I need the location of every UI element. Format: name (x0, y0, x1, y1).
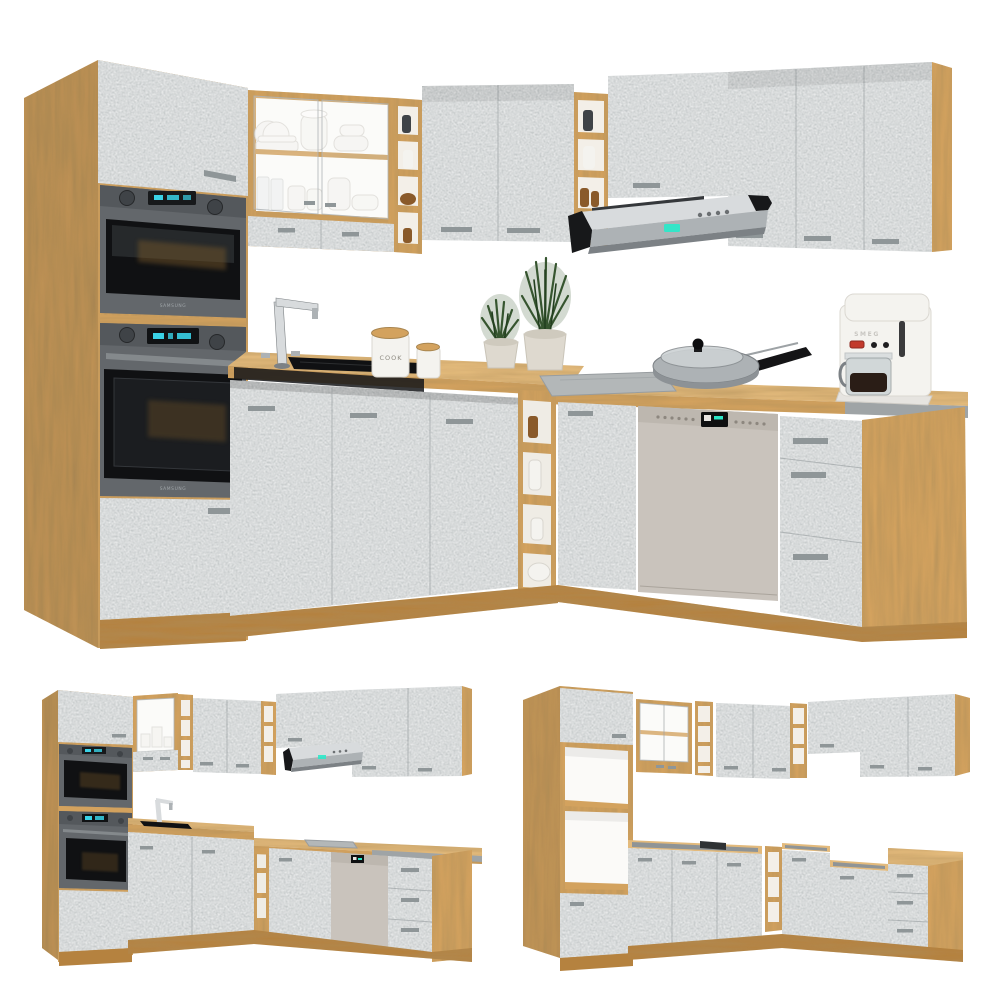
door-handle (325, 203, 336, 207)
a-tall-oven-column (42, 690, 133, 966)
bowl (400, 193, 416, 205)
faucet-lever (291, 351, 300, 356)
door-handle (304, 201, 315, 205)
pepper-mill (402, 115, 411, 133)
frying-pan (653, 339, 812, 390)
a-lower-oven (59, 811, 132, 890)
angle-render (0, 675, 500, 1000)
canisters: COOK (372, 328, 441, 379)
herb-plants (480, 258, 571, 370)
bowl (528, 563, 550, 581)
tall-bottom-panel (100, 498, 246, 620)
c-tall-unit (523, 686, 633, 971)
coffee-maker: SMEG (836, 294, 932, 405)
jar (583, 146, 595, 169)
jar (580, 188, 589, 207)
a-side-panel (432, 850, 472, 962)
a-base-left (128, 832, 254, 940)
plant-pot (524, 334, 566, 370)
dishwasher (638, 406, 778, 601)
angle-render-svg (0, 675, 500, 1000)
c-drawer-unit (888, 848, 963, 956)
jar (403, 228, 412, 243)
jar (529, 460, 541, 490)
faucet-spout (312, 308, 318, 319)
lower-oven-brand: SAMSUNG (160, 486, 187, 492)
base-corner-door (558, 402, 636, 590)
c-low-door (830, 867, 888, 948)
carcass-render-svg (500, 675, 1000, 1000)
a-hood-cabinet (276, 690, 352, 748)
a-corner-shelves (254, 842, 269, 932)
c-wall-cabinets (636, 694, 970, 779)
c-corner-shelves (765, 846, 782, 932)
upper-oven-brand: SAMSUNG (160, 303, 187, 309)
c-door (782, 850, 830, 938)
base-cabinets-left (230, 380, 522, 616)
a-upper-oven (59, 744, 132, 808)
canister-label: COOK (379, 354, 402, 362)
a-door (269, 848, 331, 946)
corner-wall-cabinets (422, 84, 574, 242)
cup (531, 518, 543, 540)
glass-display-cabinet (248, 90, 394, 252)
lower-oven: SAMSUNG (100, 323, 246, 498)
product-image: SAMSUNG SAMSUNG (0, 0, 1000, 1000)
drawer-unit (780, 416, 862, 627)
tall-top-door (98, 60, 248, 196)
c-base-left (628, 840, 762, 946)
jar (528, 416, 538, 438)
tall-oven-column: SAMSUNG SAMSUNG (24, 60, 248, 649)
upper-oven: SAMSUNG (100, 185, 246, 318)
jar (591, 191, 599, 207)
a-dishwasher (331, 852, 388, 950)
power-switch (850, 341, 864, 348)
carcass-render (500, 675, 1000, 1000)
faucet-lever (261, 353, 270, 358)
base-side-panel (862, 407, 967, 635)
bottle (583, 110, 593, 131)
main-render: SAMSUNG SAMSUNG (0, 0, 1000, 675)
corner-open-shelves (518, 390, 556, 598)
jar (403, 150, 413, 169)
wall-end-panel (932, 62, 952, 252)
hood-display (664, 224, 680, 232)
c-open-niche (565, 811, 628, 886)
a-faucet (155, 800, 162, 822)
hood-wall-cabinet (608, 72, 728, 198)
open-shelf-column-1 (394, 98, 422, 254)
main-render-svg: SAMSUNG SAMSUNG (0, 0, 1000, 675)
a-drawers (388, 856, 432, 952)
coffee-maker-brand: SMEG (854, 331, 880, 338)
water-window (899, 321, 905, 357)
